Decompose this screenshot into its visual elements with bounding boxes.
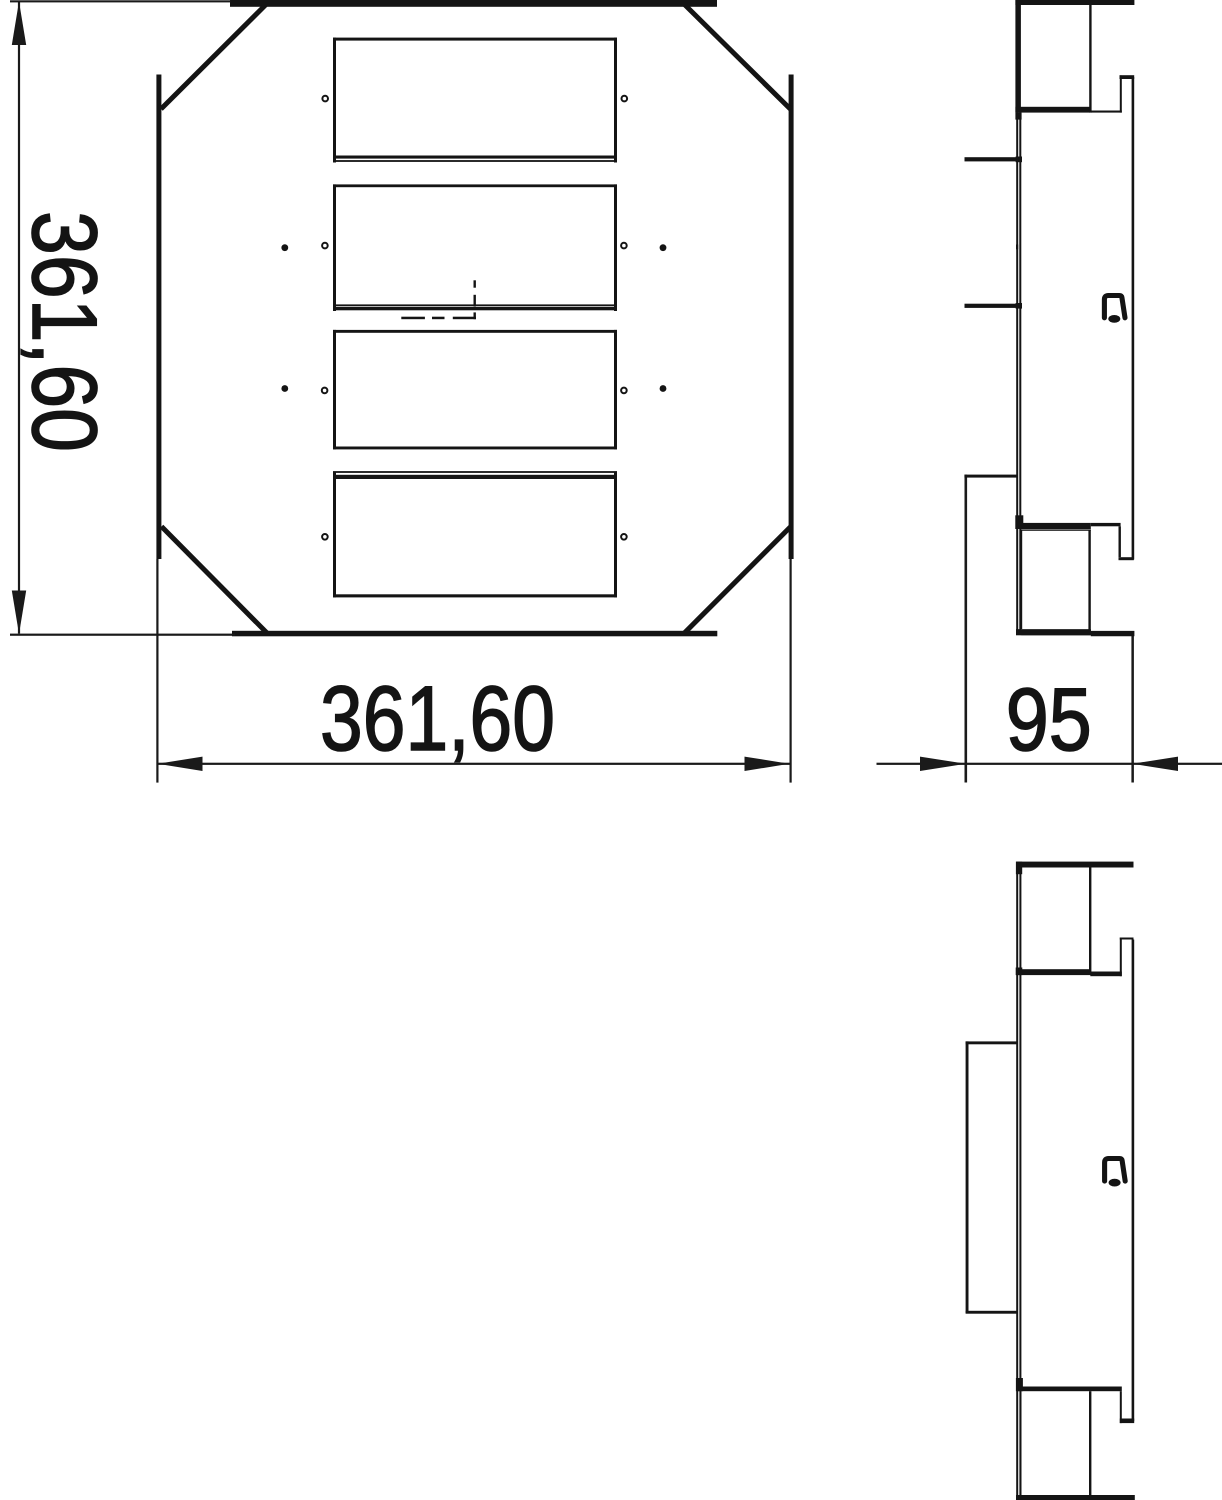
- svg-text:95: 95: [1006, 669, 1092, 769]
- svg-text:361,60: 361,60: [13, 211, 115, 452]
- svg-text:361,60: 361,60: [320, 668, 555, 770]
